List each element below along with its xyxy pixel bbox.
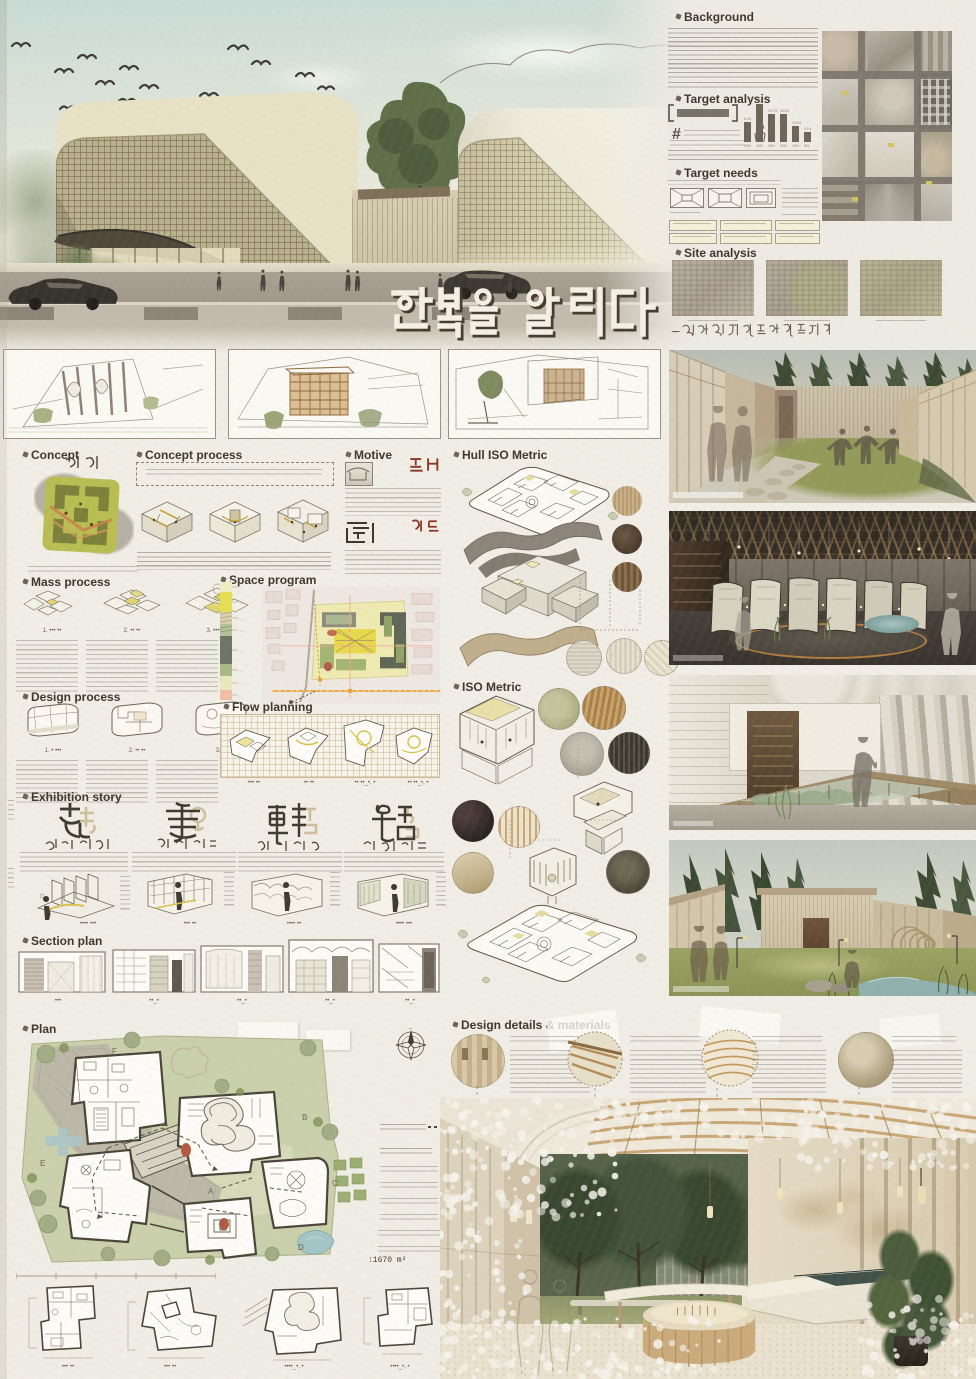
svg-text:C: C <box>332 1179 338 1188</box>
svg-text:37%: 37% <box>756 100 763 104</box>
svg-text:20%: 20% <box>780 144 787 148</box>
svg-text:B: B <box>302 1113 307 1122</box>
svg-text:18.3%: 18.3% <box>780 109 789 113</box>
svg-text:5%: 5% <box>804 144 809 148</box>
svg-text:40%: 40% <box>756 144 763 148</box>
svg-text:20%: 20% <box>768 144 775 148</box>
svg-text:10.6%: 10.6% <box>792 121 801 125</box>
svg-text:E: E <box>40 1159 45 1168</box>
svg-text:10%: 10% <box>792 144 799 148</box>
svg-text:5.1%: 5.1% <box>804 127 811 131</box>
svg-text:.......: ....... <box>239 617 246 621</box>
svg-text:......: ...... <box>239 649 245 653</box>
svg-text:18.7%: 18.7% <box>768 109 777 113</box>
svg-text:A: A <box>208 1187 214 1196</box>
svg-text:....: .... <box>239 669 243 673</box>
svg-text:......: ...... <box>239 601 245 605</box>
svg-text:.......: ....... <box>239 682 246 686</box>
svg-text:......: ...... <box>239 629 245 633</box>
svg-text:D: D <box>298 1243 304 1252</box>
svg-text:8.2%: 8.2% <box>744 117 751 121</box>
svg-text:N: N <box>409 1028 412 1030</box>
svg-text:F: F <box>112 1047 117 1056</box>
svg-text:10%: 10% <box>744 144 751 148</box>
svg-text:....: .... <box>239 586 243 590</box>
